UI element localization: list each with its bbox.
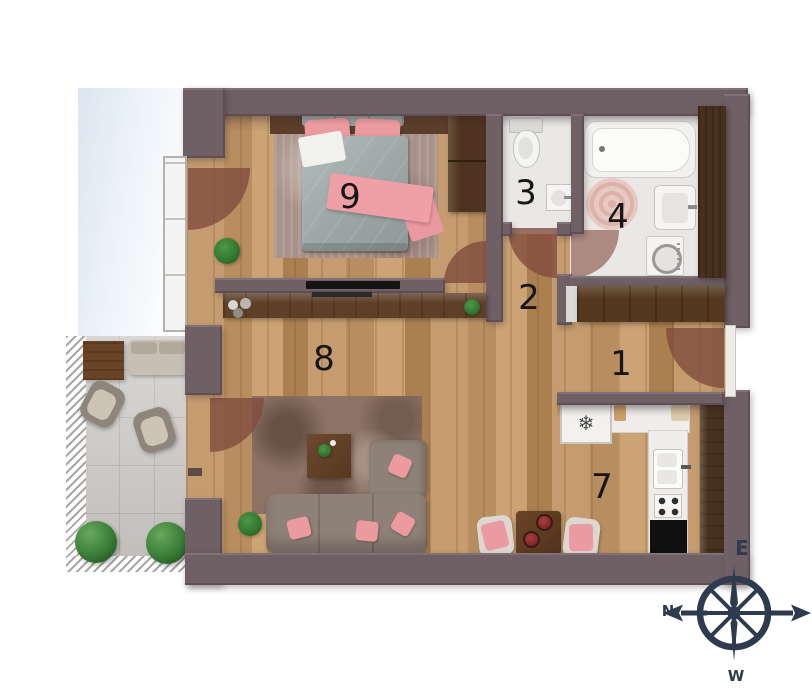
- sink-basin: [657, 470, 677, 484]
- wall-bedroom-wc-divider: [486, 114, 503, 322]
- compass-needle-down: [731, 614, 738, 661]
- sideboard-plant: [464, 299, 480, 315]
- bathtub-basin: [592, 128, 690, 172]
- room-label-bathroom: 4: [598, 199, 638, 235]
- table-bowl: [536, 514, 553, 531]
- room-label-entrance: 1: [601, 346, 641, 382]
- compass-rose: E N S W: [649, 538, 812, 688]
- compass-letter-north: N: [662, 602, 675, 620]
- potted-plant: [214, 238, 240, 264]
- bed-foot-shadow: [302, 243, 408, 253]
- chair-cushion: [569, 524, 593, 551]
- wc-sink: [546, 184, 573, 211]
- floor-plan: ❄ 9 3 4 2 1 8 7: [0, 0, 812, 688]
- chair-cushion: [480, 520, 510, 552]
- kitchen-sink: [653, 449, 683, 489]
- wall-end-cap: [566, 286, 577, 322]
- compass-needle-left: [681, 611, 707, 616]
- room-label-toilet: 3: [506, 175, 546, 211]
- soundbar: [312, 292, 372, 297]
- dining-armchair: [476, 514, 515, 557]
- wall-top: [185, 88, 748, 116]
- faucet-icon: [564, 196, 571, 199]
- bush-plant: [75, 521, 117, 563]
- compass-needle-right: [767, 611, 793, 616]
- bench-cushion: [131, 342, 157, 354]
- terrace-bench: [128, 340, 188, 375]
- armchair-seat: [139, 414, 170, 448]
- faucet-icon: [688, 205, 697, 209]
- sofa-pillow: [355, 520, 379, 542]
- washer-controls: [677, 243, 680, 270]
- sink-basin: [657, 453, 677, 467]
- faucet-icon: [681, 465, 691, 469]
- room-label-hallway: 2: [509, 280, 549, 316]
- bush-plant: [146, 522, 188, 564]
- room-label-bedroom: 9: [330, 179, 370, 215]
- wall-left-upper: [185, 325, 222, 395]
- entrance-wardrobe: [577, 286, 725, 322]
- decor-bowl: [240, 298, 251, 309]
- terrace-table: [83, 341, 124, 380]
- sink-basin: [662, 193, 688, 223]
- entrance-door-leaf: [725, 325, 736, 397]
- wall-tv: [306, 281, 400, 289]
- decor-bowl: [233, 308, 243, 318]
- bathtub: [584, 121, 696, 178]
- bedroom-window: [163, 156, 187, 332]
- counter-item: [671, 405, 689, 421]
- wall-hall-bath-upper: [557, 222, 572, 236]
- bathroom-sink: [654, 185, 696, 230]
- cooktop-stove: [654, 494, 682, 518]
- bench-cushion: [159, 342, 185, 354]
- toilet-bowl: [513, 130, 540, 168]
- cutting-board: [614, 405, 626, 421]
- armchair-seat: [84, 387, 118, 423]
- room-label-kitchen: 7: [582, 469, 622, 505]
- wardrobe-divider: [448, 160, 488, 162]
- compass-arrowhead-right: [791, 605, 811, 622]
- wall-wc-bath-divider: [571, 114, 584, 234]
- faucet-icon: [599, 146, 605, 152]
- washing-machine: [646, 236, 684, 276]
- door-threshold: [188, 468, 202, 476]
- duct-column: [698, 106, 726, 278]
- snowflake-icon: ❄: [578, 411, 595, 435]
- compass-letter-west: W: [728, 667, 745, 685]
- wall-right-upper: [724, 94, 750, 328]
- bedroom-wardrobe: [448, 110, 488, 212]
- fridge: ❄: [560, 402, 612, 444]
- wall-wc-south: [503, 222, 512, 236]
- potted-plant: [238, 512, 262, 536]
- compass-needle-up: [730, 565, 738, 612]
- wall-top-left-corner: [183, 88, 225, 158]
- room-label-living-room: 8: [304, 341, 344, 377]
- table-bowl: [523, 531, 540, 548]
- toilet-seat: [518, 137, 533, 159]
- wall-kitchen-north: [557, 392, 724, 405]
- compass-letter-east: E: [735, 538, 749, 560]
